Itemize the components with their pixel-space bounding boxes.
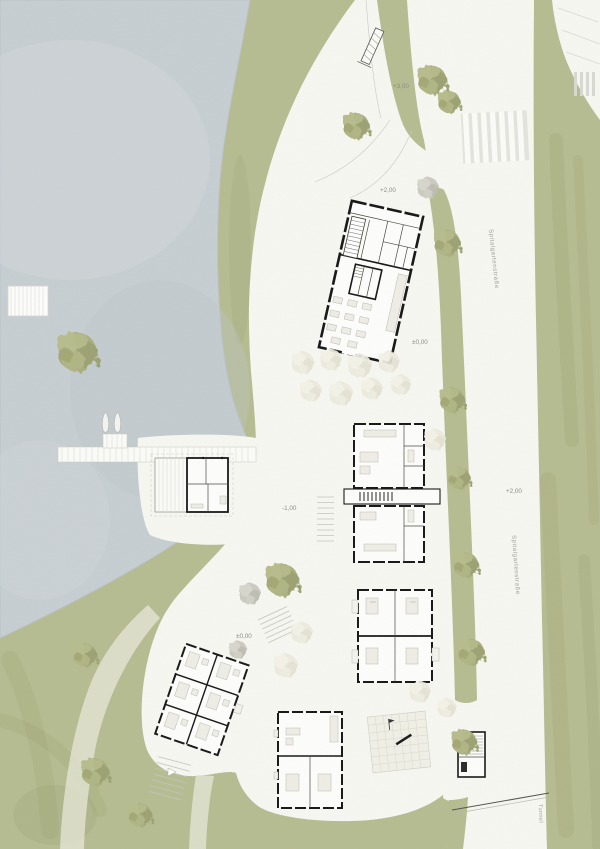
- site-plan-drawing: +3,00 +2,00 ±0,00 -1,00 ±0,00 +2,00 Spit…: [0, 0, 600, 849]
- site-plan-canvas: +3,00 +2,00 ±0,00 -1,00 ±0,00 +2,00 Spit…: [0, 0, 600, 849]
- paper-grain-overlay: [0, 0, 600, 849]
